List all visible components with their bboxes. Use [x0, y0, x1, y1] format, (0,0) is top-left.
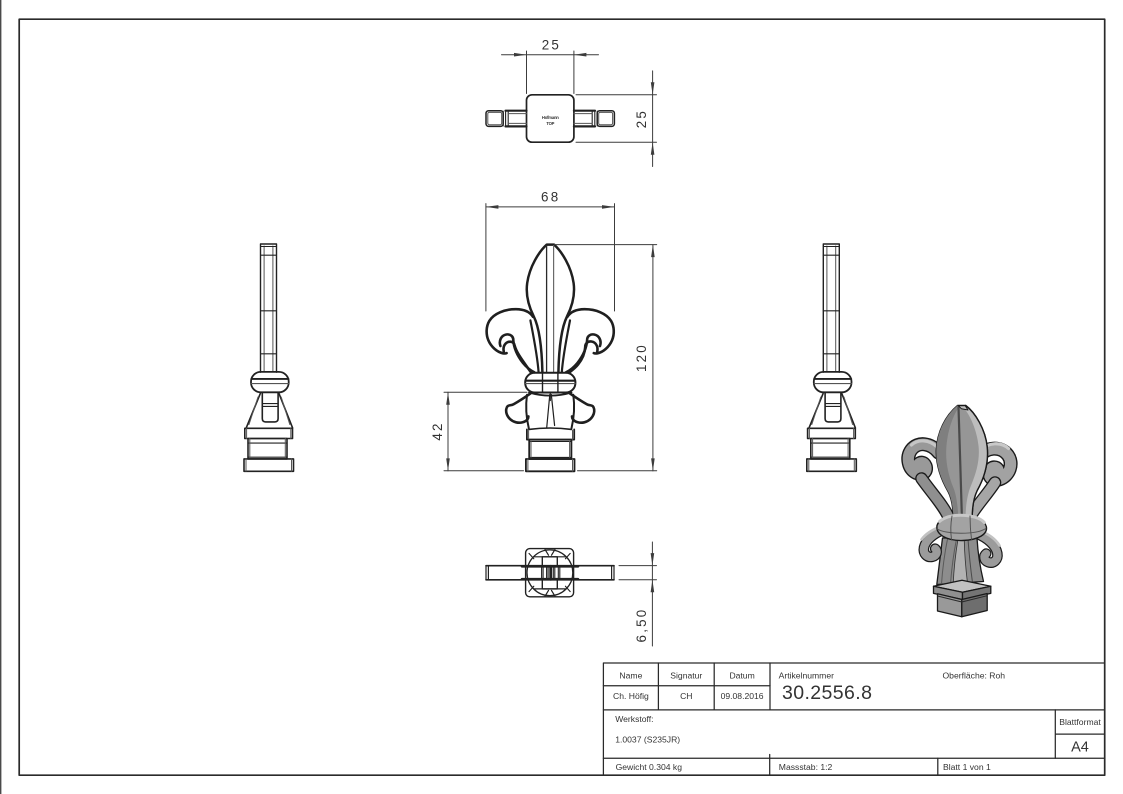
- svg-text:25: 25: [542, 37, 561, 52]
- svg-text:1.0037 (S235JR): 1.0037 (S235JR): [615, 735, 680, 745]
- svg-text:Blattformat: Blattformat: [1059, 717, 1101, 727]
- svg-text:09.08.2016: 09.08.2016: [721, 691, 764, 701]
- svg-text:Ch. Höfig: Ch. Höfig: [613, 691, 649, 701]
- svg-text:120: 120: [634, 343, 649, 372]
- svg-text:CH: CH: [680, 691, 692, 701]
- svg-text:TOP: TOP: [546, 121, 554, 126]
- svg-text:Datum: Datum: [729, 671, 754, 681]
- svg-text:42: 42: [430, 421, 445, 440]
- svg-text:Massstab: 1:2: Massstab: 1:2: [779, 762, 833, 772]
- svg-text:Artikelnummer: Artikelnummer: [779, 671, 835, 681]
- svg-text:68: 68: [541, 189, 560, 204]
- svg-text:Name: Name: [619, 671, 642, 681]
- svg-text:Signatur: Signatur: [670, 671, 702, 681]
- svg-text:Gewicht 0.304 kg: Gewicht 0.304 kg: [616, 762, 683, 772]
- svg-text:25: 25: [634, 109, 649, 128]
- svg-text:Oberfläche: Roh: Oberfläche: Roh: [943, 671, 1006, 681]
- svg-text:30.2556.8: 30.2556.8: [782, 682, 872, 704]
- svg-text:Blatt 1 von 1: Blatt 1 von 1: [943, 762, 991, 772]
- svg-text:6,50: 6,50: [634, 608, 649, 643]
- svg-text:Hofmann: Hofmann: [542, 115, 559, 120]
- svg-text:A4: A4: [1071, 740, 1089, 756]
- svg-text:Werkstoff:: Werkstoff:: [615, 714, 653, 724]
